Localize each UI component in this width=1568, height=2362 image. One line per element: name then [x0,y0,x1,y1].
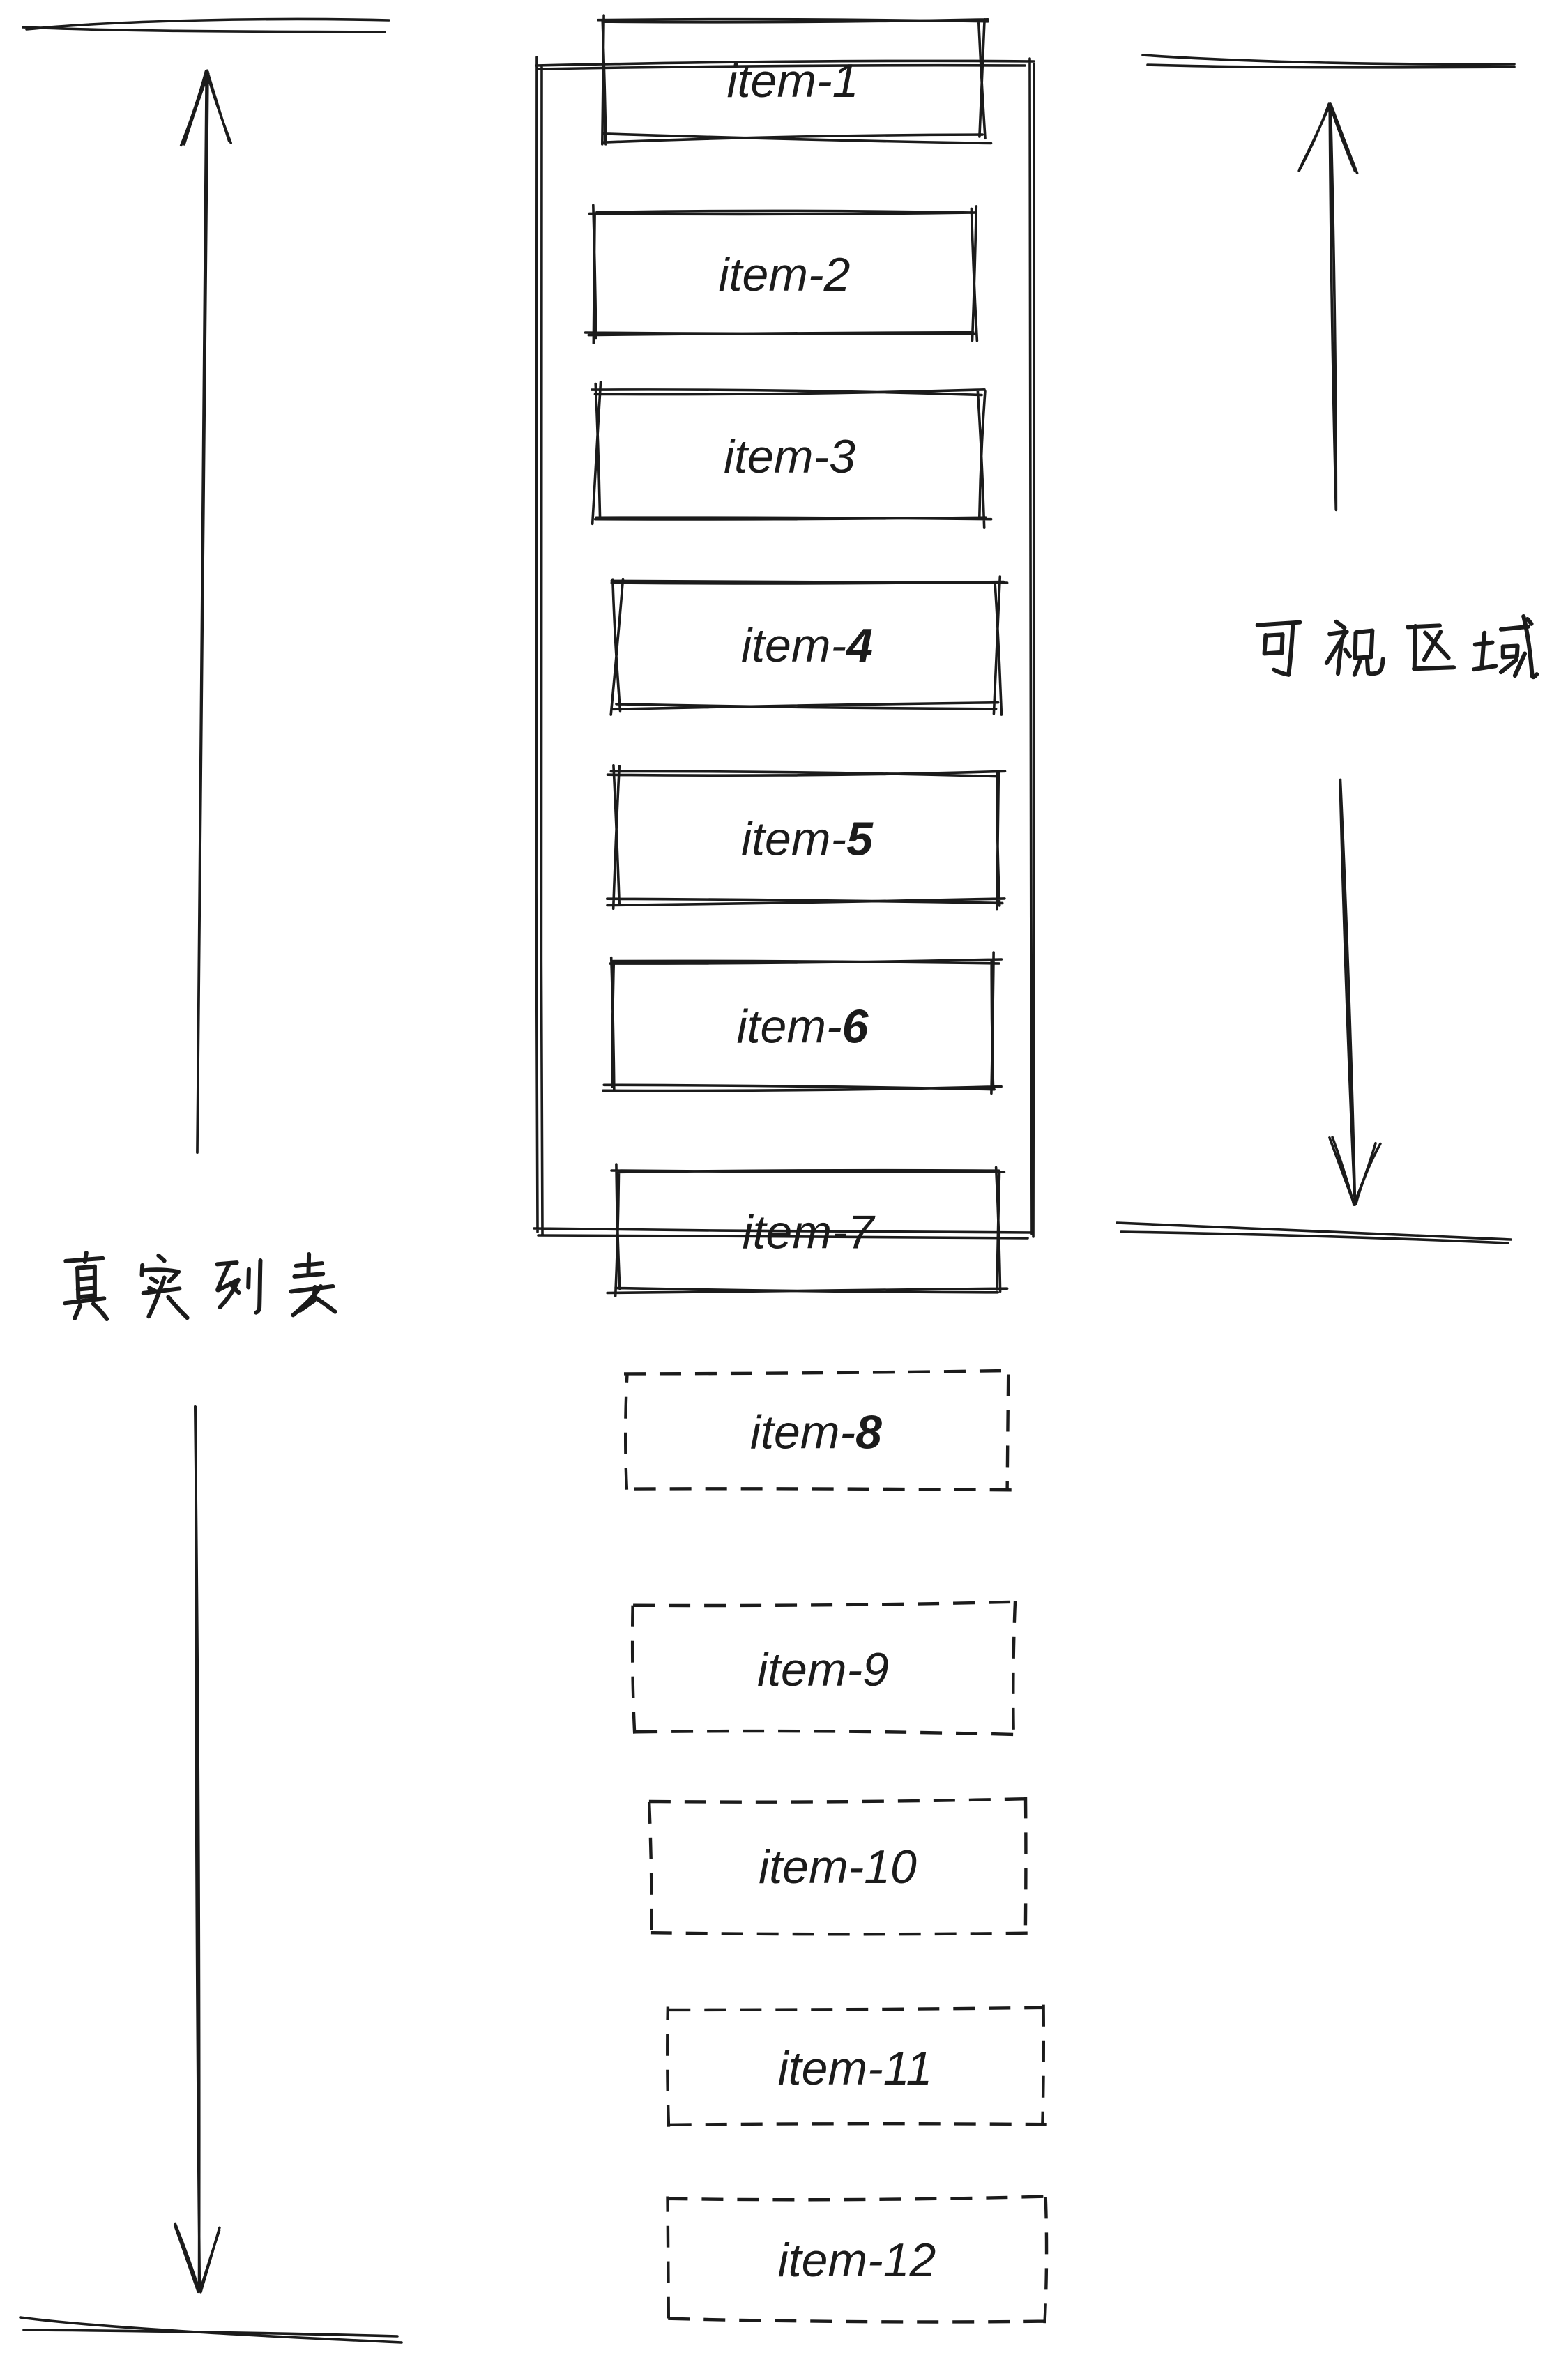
svg-text:item-3: item-3 [724,430,855,483]
svg-text:item-1: item-1 [727,54,859,107]
svg-text:item-4: item-4 [741,619,873,672]
svg-text:item-10: item-10 [759,1841,917,1894]
svg-text:item-11: item-11 [778,2042,933,2095]
svg-text:item-7: item-7 [743,1206,876,1259]
svg-text:item-9: item-9 [757,1643,889,1696]
svg-text:item-2: item-2 [719,248,851,301]
svg-text:item-5: item-5 [741,813,874,866]
svg-text:item-6: item-6 [737,1000,869,1053]
svg-text:item-8: item-8 [750,1406,882,1459]
svg-text:item-12: item-12 [778,2234,936,2287]
